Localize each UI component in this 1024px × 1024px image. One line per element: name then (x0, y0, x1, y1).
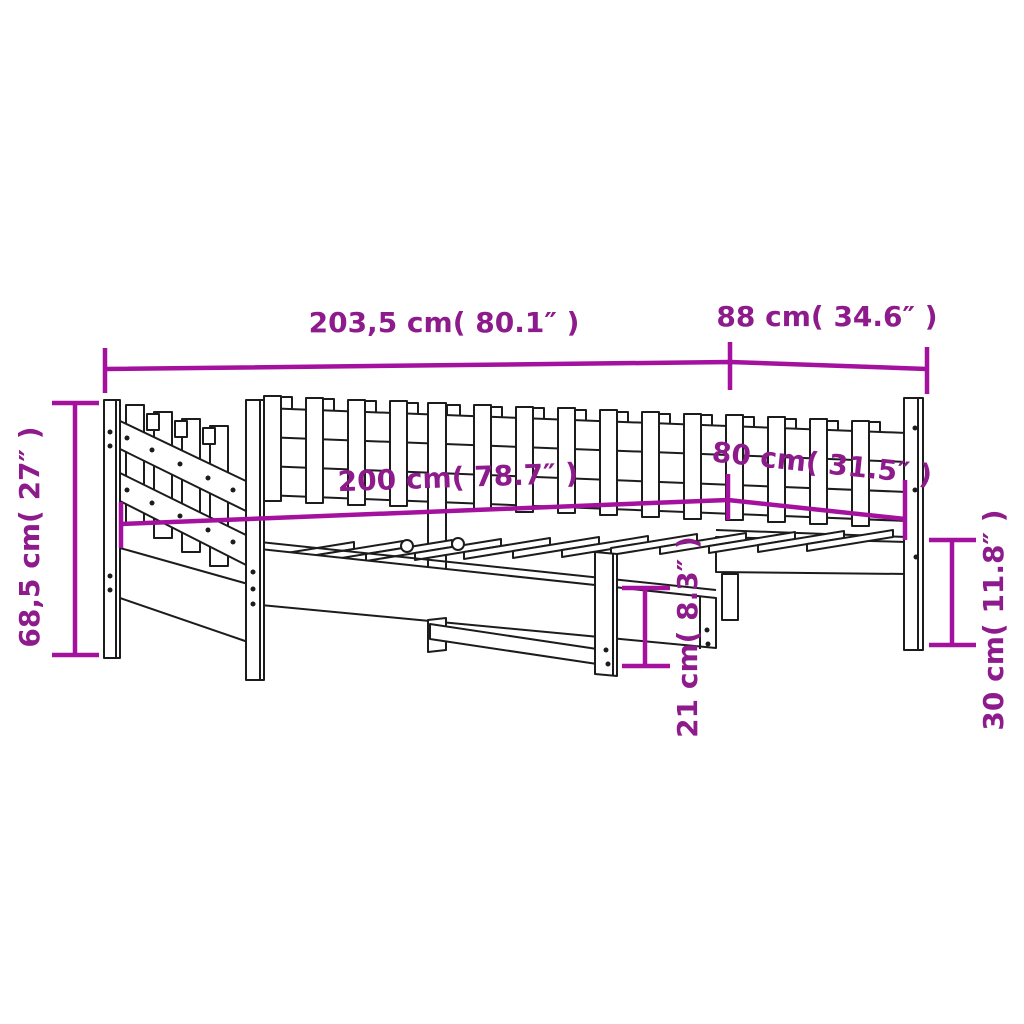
dim-label-leg-height: 30 cm( 11.8″ ) (980, 509, 1008, 730)
rear-right-stub-leg (722, 574, 738, 620)
mid-front-leg (595, 552, 617, 676)
slat-screw (452, 538, 464, 550)
dim-label-total-depth: 88 cm( 34.6″ ) (716, 303, 937, 331)
back-left-post (104, 400, 120, 658)
dim-label-total-height: 68,5 cm( 27″ ) (16, 426, 44, 647)
left-end-fence (104, 400, 248, 658)
dim-label-sleeping-length: 200 cm( 78.7″ ) (337, 460, 578, 496)
dim-label-total-length: 203,5 cm( 80.1″ ) (309, 309, 580, 337)
dim-line-total (105, 362, 927, 369)
dimension-diagram: 203,5 cm( 80.1″ ) 88 cm( 34.6″ ) 68,5 cm… (0, 0, 1024, 1024)
front-left-post (246, 400, 264, 680)
slat-screw (401, 540, 413, 552)
daybed-line-art (0, 0, 1024, 1024)
dim-label-clearance: 21 cm( 8.3″ ) (674, 536, 702, 738)
